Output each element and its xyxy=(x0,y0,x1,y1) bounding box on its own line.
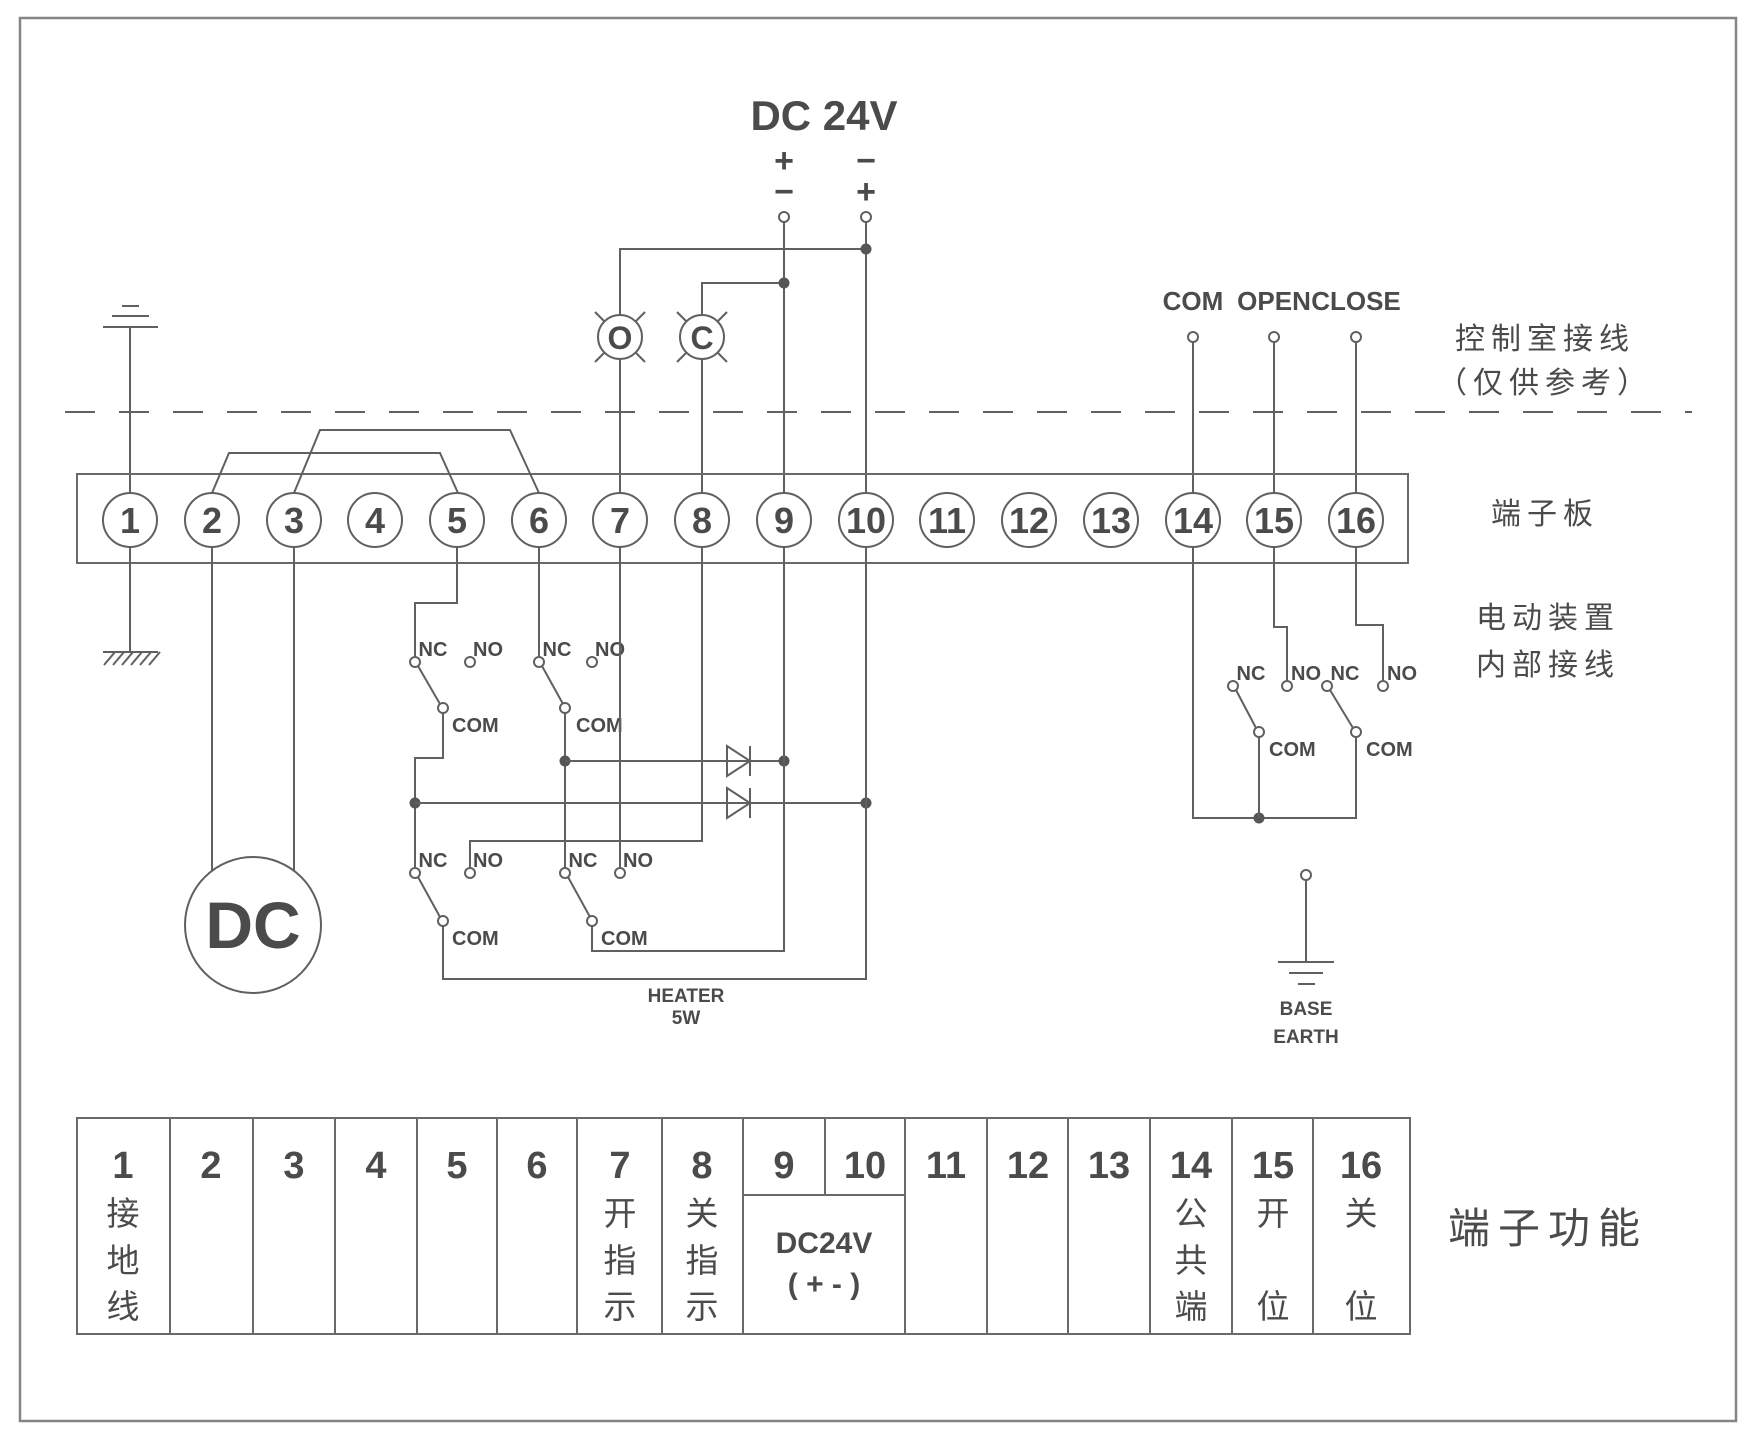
control-room-label-1: 控制室接线 xyxy=(1455,323,1635,356)
nc-label: NC xyxy=(569,850,598,872)
motor-label: DC xyxy=(205,888,300,962)
lamp-tick xyxy=(595,312,605,322)
dc-motor: DC xyxy=(185,547,321,993)
internal-wiring-label-2: 内部接线 xyxy=(1476,649,1620,682)
table-col16-char: 关 xyxy=(1345,1195,1378,1232)
table-col16-char: 位 xyxy=(1345,1288,1378,1325)
terminal-7-number: 7 xyxy=(610,500,630,541)
table-col7-char: 示 xyxy=(604,1288,637,1325)
table-number-4: 4 xyxy=(365,1145,386,1187)
terminal-function-label: 端子功能 xyxy=(1448,1205,1648,1252)
close-indicator-lamp: C xyxy=(677,278,790,494)
base-earth-icon: BASE EARTH xyxy=(1273,870,1338,1048)
com-contact-icon xyxy=(438,916,448,926)
lead-terminal-icon xyxy=(1351,332,1361,342)
terminal-10-number: 10 xyxy=(846,500,886,541)
supply-terminal-icon xyxy=(779,212,789,222)
terminal-11-number: 11 xyxy=(928,500,966,541)
table-col1-char: 地 xyxy=(107,1242,140,1279)
no-label: NO xyxy=(473,639,503,661)
table-number-12: 12 xyxy=(1007,1145,1049,1187)
lamp-tick xyxy=(635,312,645,322)
diode-branch-upper xyxy=(565,746,790,776)
switch-blade xyxy=(568,877,590,917)
limit-switch-open-position: NC NO COM xyxy=(1228,663,1321,761)
terminal-2-number: 2 xyxy=(202,500,222,541)
switch-blade xyxy=(1330,690,1353,728)
earth-terminal-icon xyxy=(1301,870,1311,880)
table-dc24v-polarity: ( + - ) xyxy=(788,1268,861,1301)
table-col1-char: 线 xyxy=(107,1288,140,1325)
lamp-tick xyxy=(595,352,605,362)
terminal-1-number: 1 xyxy=(120,500,140,541)
table-col8-char: 指 xyxy=(686,1242,719,1279)
control-leads: COM OPEN CLOSE xyxy=(1163,286,1401,493)
wire-close-lamp-top xyxy=(702,283,784,315)
com-label: COM xyxy=(601,928,648,950)
plus-sign: + xyxy=(856,173,876,211)
heater-label: HEATER 5W xyxy=(648,986,725,1029)
switch-blade xyxy=(418,877,440,917)
table-number-7: 7 xyxy=(609,1145,630,1187)
no-label: NO xyxy=(623,850,653,872)
table-number-10: 10 xyxy=(844,1145,886,1187)
dc24v-title: DC 24V xyxy=(750,92,897,139)
com-label: COM xyxy=(452,928,499,950)
close-lamp-letter: C xyxy=(690,320,713,356)
base-earth-text-2: EARTH xyxy=(1273,1027,1338,1048)
terminal-3-number: 3 xyxy=(284,500,304,541)
open-indicator-lamp: O xyxy=(595,244,872,494)
table-col8-char: 示 xyxy=(686,1288,719,1325)
heater-watt: 5W xyxy=(672,1008,701,1029)
wire-com-chain xyxy=(415,713,443,868)
terminal-4-number: 4 xyxy=(365,500,385,541)
internal-wiring-label-1: 电动装置 xyxy=(1476,602,1620,635)
control-room-label-2: （仅供参考） xyxy=(1437,367,1653,400)
table-number-16: 16 xyxy=(1340,1145,1382,1187)
nc-label: NC xyxy=(543,639,572,661)
minus-sign: − xyxy=(774,173,794,211)
jumper-3-6 xyxy=(294,430,539,493)
switch-blade xyxy=(542,666,563,704)
lamp-tick xyxy=(635,352,645,362)
junction-dot xyxy=(861,244,872,255)
limit-switch-close-nc: NC NO COM xyxy=(534,547,625,868)
terminal-9-number: 9 xyxy=(774,500,794,541)
section-labels: 控制室接线 （仅供参考） 端子板 电动装置 内部接线 端子功能 xyxy=(1437,323,1653,1252)
table-col14-char: 端 xyxy=(1175,1288,1208,1325)
nc-label: NC xyxy=(419,639,448,661)
table-number-5: 5 xyxy=(446,1145,467,1187)
no-label: NO xyxy=(1387,663,1417,685)
table-col14-char: 共 xyxy=(1175,1242,1208,1279)
com-label: COM xyxy=(576,715,623,737)
switch-blade xyxy=(418,666,440,704)
com-label: COM xyxy=(1366,739,1413,761)
supply-terminal-icon xyxy=(861,212,871,222)
no-label: NO xyxy=(473,850,503,872)
table-col15-char: 开 xyxy=(1257,1195,1290,1232)
terminal-circles: 1 2 3 4 5 6 7 8 9 10 11 12 13 14 15 16 xyxy=(103,493,1383,547)
table-col7-char: 指 xyxy=(604,1242,637,1279)
com-contact-icon xyxy=(1351,727,1361,737)
lead-terminal-icon xyxy=(1188,332,1198,342)
com-label: COM xyxy=(452,715,499,737)
dc24v-supply: DC 24V + − − + xyxy=(750,92,897,493)
heater-text: HEATER xyxy=(648,986,725,1007)
wire-terminal8-no xyxy=(470,547,702,868)
lamp-tick xyxy=(717,312,727,322)
base-earth-text-1: BASE xyxy=(1280,999,1333,1020)
terminal-6-number: 6 xyxy=(529,500,549,541)
nc-label: NC xyxy=(1331,663,1360,685)
control-room-earth-icon xyxy=(103,306,158,493)
com-label: COM xyxy=(1163,286,1224,316)
terminal-8-number: 8 xyxy=(692,500,712,541)
junction-dot xyxy=(779,278,790,289)
protective-earth-icon xyxy=(103,547,160,665)
open-label: OPEN xyxy=(1237,286,1311,316)
com-contact-icon xyxy=(560,703,570,713)
table-dc24v-text: DC24V xyxy=(776,1227,873,1260)
terminal-16-number: 16 xyxy=(1336,500,1376,541)
com-contact-icon xyxy=(438,703,448,713)
nc-label: NC xyxy=(1237,663,1266,685)
limit-switch-close-position: NC NO COM xyxy=(1322,663,1417,761)
table-number-1: 1 xyxy=(112,1145,133,1187)
limit-switch-open-ind: NC NO COM xyxy=(410,850,503,950)
close-label: CLOSE xyxy=(1311,286,1401,316)
lamp-tick xyxy=(677,312,687,322)
lamp-tick xyxy=(677,352,687,362)
terminal-function-table: 1 2 3 4 5 6 7 8 9 10 11 12 13 14 15 16 接… xyxy=(77,1118,1410,1334)
table-number-9: 9 xyxy=(773,1145,794,1187)
table-col14-char: 公 xyxy=(1175,1195,1208,1232)
table-number-15: 15 xyxy=(1252,1145,1294,1187)
lead-terminal-icon xyxy=(1269,332,1279,342)
switch-blade xyxy=(1236,690,1256,728)
terminal-12-number: 12 xyxy=(1009,500,1049,541)
wire-terminal15-no xyxy=(1274,547,1287,681)
table-number-3: 3 xyxy=(283,1145,304,1187)
terminal-13-number: 13 xyxy=(1091,500,1131,541)
terminal-15-number: 15 xyxy=(1254,500,1294,541)
table-number-13: 13 xyxy=(1088,1145,1130,1187)
wire-terminal10-heater-com xyxy=(443,547,866,979)
limit-switch-close-ind: NC NO COM xyxy=(560,850,653,950)
no-label: NO xyxy=(1291,663,1321,685)
table-col15-char: 位 xyxy=(1257,1288,1290,1325)
table-number-6: 6 xyxy=(526,1145,547,1187)
table-col1-char: 接 xyxy=(107,1195,140,1232)
com-contact-icon xyxy=(1254,727,1264,737)
diode-branch-lower xyxy=(415,788,872,818)
lamp-tick xyxy=(717,352,727,362)
table-col7-char: 开 xyxy=(604,1195,637,1232)
terminal-14-number: 14 xyxy=(1173,500,1213,541)
table-number-8: 8 xyxy=(691,1145,712,1187)
com-contact-icon xyxy=(587,916,597,926)
terminal-board-label: 端子板 xyxy=(1491,498,1599,531)
table-number-11: 11 xyxy=(926,1145,966,1187)
limit-switch-open-nc: NC NO COM xyxy=(410,547,504,868)
nc-label: NC xyxy=(419,850,448,872)
table-number-14: 14 xyxy=(1170,1145,1212,1187)
table-col8-char: 关 xyxy=(686,1195,719,1232)
open-lamp-letter: O xyxy=(608,320,633,356)
terminal-5-number: 5 xyxy=(447,500,467,541)
wire-terminal16-no xyxy=(1356,547,1383,681)
table-number-2: 2 xyxy=(200,1145,221,1187)
com-label: COM xyxy=(1269,739,1316,761)
wiring-diagram: DC 24V + − − + O C COM OPEN CLOSE xyxy=(0,0,1755,1440)
